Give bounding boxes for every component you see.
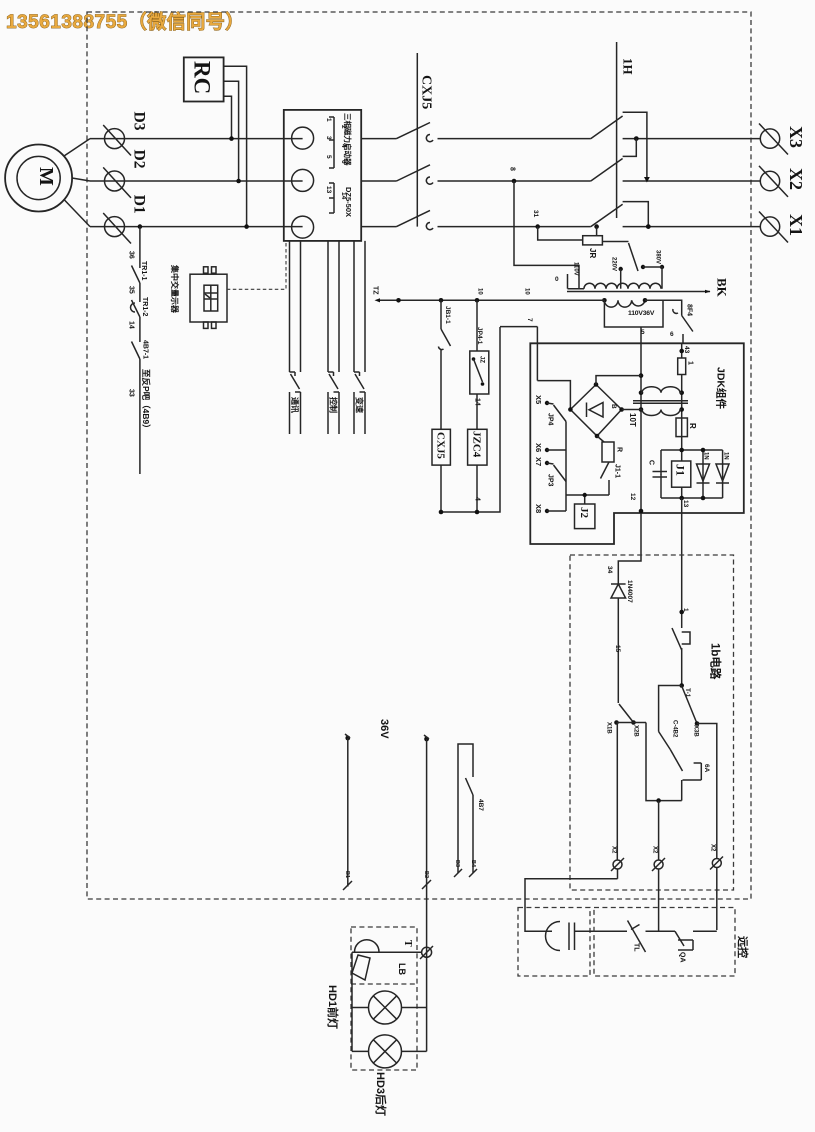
svg-text:HD1前灯: HD1前灯 <box>326 985 340 1029</box>
svg-text:1b电路: 1b电路 <box>709 643 723 680</box>
svg-text:X2: X2 <box>652 846 658 854</box>
svg-text:10: 10 <box>477 288 483 295</box>
svg-text:14: 14 <box>128 321 135 329</box>
svg-text:X2: X2 <box>710 844 716 852</box>
svg-text:X2: X2 <box>611 846 617 854</box>
svg-text:DZ5-50X: DZ5-50X <box>344 187 353 217</box>
svg-text:HD3后灯: HD3后灯 <box>374 1072 388 1116</box>
svg-text:X6: X6 <box>534 443 543 452</box>
svg-text:C-4B2: C-4B2 <box>672 720 678 738</box>
svg-text:CXJ5: CXJ5 <box>435 432 447 459</box>
svg-text:JDK组件: JDK组件 <box>715 367 728 410</box>
svg-text:RC: RC <box>189 61 214 94</box>
svg-text:1N4007: 1N4007 <box>626 580 633 603</box>
svg-text:10: 10 <box>524 288 530 295</box>
svg-text:TR1-1: TR1-1 <box>140 261 147 281</box>
svg-text:380V: 380V <box>655 250 661 264</box>
svg-text:B3: B3 <box>454 860 460 867</box>
svg-text:D2: D2 <box>131 150 148 169</box>
svg-text:JP4-1: JP4-1 <box>476 327 483 345</box>
svg-text:M: M <box>35 167 57 186</box>
svg-text:31: 31 <box>532 210 539 218</box>
svg-text:110V36V: 110V36V <box>628 310 655 317</box>
svg-text:1: 1 <box>325 118 332 122</box>
svg-text:X3B: X3B <box>693 725 699 737</box>
svg-text:13561388755（微信同号）: 13561388755（微信同号） <box>6 10 245 33</box>
svg-text:4B7: 4B7 <box>477 799 484 811</box>
svg-text:3: 3 <box>325 136 332 140</box>
svg-text:R: R <box>688 423 697 429</box>
svg-text:D3: D3 <box>131 112 148 131</box>
svg-text:33: 33 <box>128 389 135 397</box>
svg-text:JR: JR <box>588 248 597 258</box>
svg-text:集中交量示器: 集中交量示器 <box>170 264 180 314</box>
svg-text:控制: 控制 <box>328 397 338 413</box>
svg-text:JP3: JP3 <box>547 474 554 487</box>
svg-text:X2B: X2B <box>633 725 639 737</box>
svg-text:43: 43 <box>683 346 690 354</box>
svg-text:C: C <box>648 460 655 465</box>
svg-text:1: 1 <box>687 361 694 365</box>
svg-text:X2: X2 <box>786 168 806 190</box>
svg-text:TR1-2: TR1-2 <box>141 297 148 317</box>
svg-text:TL: TL <box>633 943 640 952</box>
svg-text:JZC4: JZC4 <box>471 431 483 458</box>
svg-text:34: 34 <box>606 566 613 574</box>
svg-text:X5: X5 <box>534 395 543 404</box>
svg-text:B1: B1 <box>344 871 350 878</box>
svg-text:110V: 110V <box>573 262 579 276</box>
svg-text:13: 13 <box>325 186 332 194</box>
svg-text:1H: 1H <box>620 58 635 75</box>
svg-text:4: 4 <box>474 497 481 501</box>
svg-text:J1: J1 <box>674 464 688 476</box>
svg-text:X7: X7 <box>534 457 543 466</box>
svg-text:13: 13 <box>682 500 689 508</box>
svg-text:三相磁力启动器: 三相磁力启动器 <box>343 113 353 166</box>
svg-text:至反P吧（4B9）: 至反P吧（4B9） <box>141 369 151 433</box>
svg-text:J2: J2 <box>578 507 590 519</box>
svg-text:7: 7 <box>526 318 533 322</box>
svg-text:X1B: X1B <box>606 722 612 734</box>
svg-text:变速: 变速 <box>354 397 364 413</box>
svg-text:4B7-1: 4B7-1 <box>142 340 149 359</box>
svg-text:6A: 6A <box>703 764 710 773</box>
svg-text:X8: X8 <box>534 504 543 513</box>
svg-text:36V: 36V <box>378 719 390 739</box>
svg-text:35: 35 <box>128 286 135 294</box>
svg-text:12: 12 <box>629 493 636 501</box>
svg-text:1: 1 <box>682 608 689 612</box>
svg-text:8F4: 8F4 <box>686 304 693 316</box>
svg-text:R: R <box>616 447 623 452</box>
svg-text:15: 15 <box>614 645 621 653</box>
svg-text:JB1-1: JB1-1 <box>444 306 451 324</box>
svg-text:220V: 220V <box>611 257 617 271</box>
svg-text:8: 8 <box>509 167 516 171</box>
svg-text:X1: X1 <box>786 214 806 236</box>
svg-text:CXJ5: CXJ5 <box>418 75 433 109</box>
svg-text:5: 5 <box>325 155 332 159</box>
svg-text:6: 6 <box>670 331 674 338</box>
svg-text:T: T <box>402 940 413 947</box>
svg-text:JP4: JP4 <box>547 413 554 426</box>
svg-text:JZ: JZ <box>479 356 485 363</box>
svg-text:J1-1: J1-1 <box>614 464 621 478</box>
svg-text:通讯: 通讯 <box>290 397 300 413</box>
svg-text:1N: 1N <box>723 452 729 460</box>
svg-text:0: 0 <box>555 276 559 283</box>
svg-text:X3: X3 <box>786 126 806 148</box>
svg-text:QA: QA <box>679 952 686 963</box>
svg-text:B2: B2 <box>423 871 429 878</box>
svg-text:B4: B4 <box>470 860 476 868</box>
svg-text:TZ: TZ <box>372 286 379 295</box>
svg-text:远控: 远控 <box>736 936 750 958</box>
svg-text:B: B <box>610 404 617 409</box>
svg-text:1N: 1N <box>703 452 709 460</box>
svg-text:10T: 10T <box>628 413 637 427</box>
svg-text:D1: D1 <box>131 195 148 214</box>
svg-text:36: 36 <box>128 251 135 259</box>
svg-text:BK: BK <box>714 278 729 298</box>
svg-text:LB: LB <box>397 963 407 975</box>
